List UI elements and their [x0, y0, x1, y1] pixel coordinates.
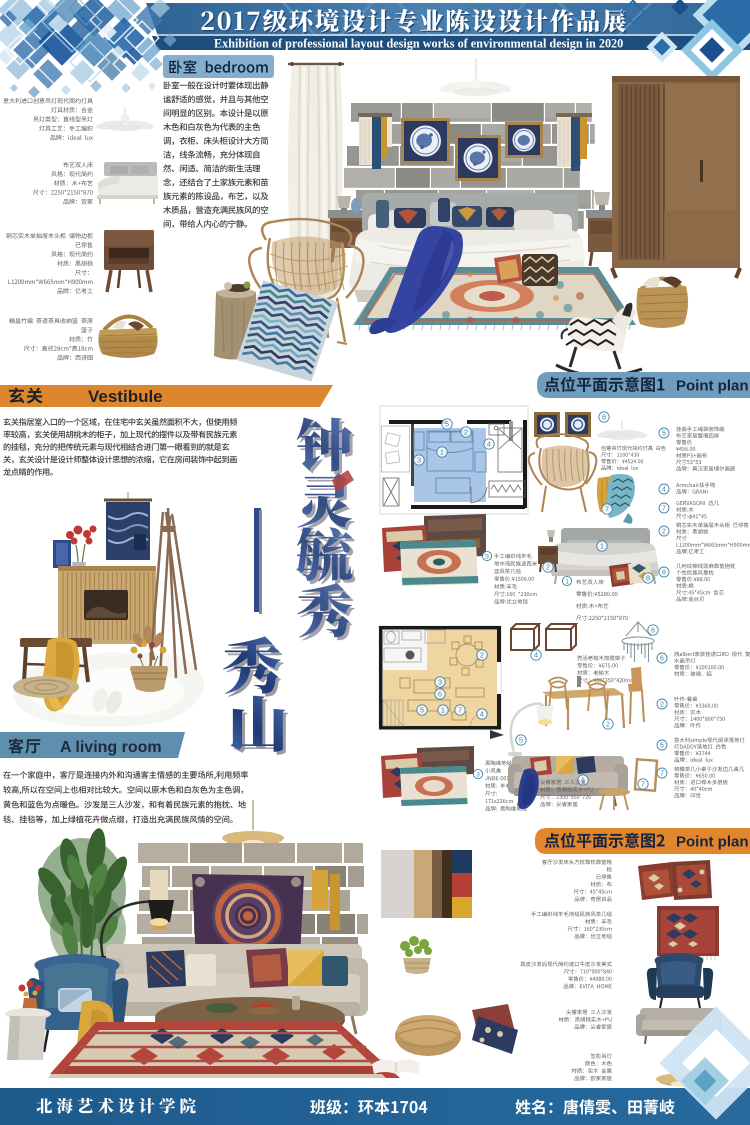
- svg-text:2: 2: [464, 428, 468, 437]
- svg-text:4: 4: [487, 440, 491, 449]
- svg-text:1: 1: [565, 578, 569, 585]
- svg-text:2: 2: [662, 529, 666, 536]
- svg-text:4: 4: [480, 710, 484, 719]
- svg-text:2: 2: [606, 720, 610, 729]
- svg-text:5: 5: [660, 743, 664, 750]
- svg-text:1: 1: [441, 706, 445, 715]
- svg-text:3: 3: [485, 553, 489, 560]
- svg-text:4: 4: [662, 487, 666, 494]
- svg-text:Point plan: Point plan: [676, 378, 749, 395]
- svg-text:3: 3: [476, 771, 480, 778]
- svg-text:3: 3: [438, 678, 442, 687]
- svg-text:7: 7: [662, 506, 666, 513]
- svg-text:Point plan: Point plan: [676, 834, 749, 851]
- svg-text:7: 7: [458, 706, 462, 715]
- svg-text:Exhibition of professional lay: Exhibition of professional layout design…: [214, 37, 623, 51]
- svg-text:7: 7: [660, 771, 664, 778]
- svg-text:8: 8: [662, 570, 666, 577]
- svg-text:1: 1: [440, 448, 444, 457]
- svg-text:2: 2: [660, 702, 664, 709]
- svg-text:2: 2: [546, 563, 550, 572]
- svg-text:7: 7: [605, 505, 609, 514]
- svg-text:A living room: A living room: [60, 739, 162, 756]
- svg-text:3: 3: [417, 456, 421, 465]
- svg-text:5: 5: [420, 706, 424, 715]
- svg-text:5: 5: [445, 420, 449, 429]
- svg-text:Vestibule: Vestibule: [88, 387, 163, 406]
- svg-text:6: 6: [602, 413, 606, 422]
- svg-text:2: 2: [480, 651, 484, 660]
- svg-text:8: 8: [646, 574, 650, 583]
- svg-text:7: 7: [641, 780, 645, 789]
- svg-text:4: 4: [534, 651, 538, 660]
- svg-text:6: 6: [660, 656, 664, 663]
- svg-text:1: 1: [600, 542, 604, 551]
- svg-text:6: 6: [651, 626, 655, 635]
- svg-text:6: 6: [438, 690, 442, 699]
- svg-text:5: 5: [519, 736, 523, 745]
- svg-text:5: 5: [662, 431, 666, 438]
